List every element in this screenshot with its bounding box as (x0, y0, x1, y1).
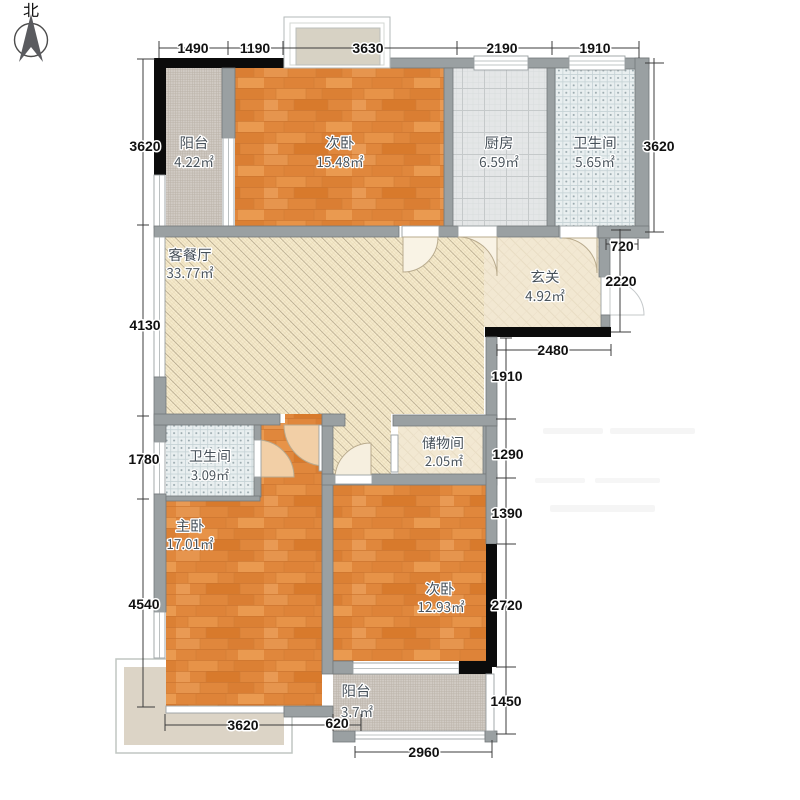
svg-text:3620: 3620 (227, 717, 258, 733)
svg-text:1490: 1490 (177, 40, 208, 56)
svg-text:2720: 2720 (491, 597, 522, 613)
svg-text:1290: 1290 (492, 446, 523, 462)
svg-text:3630: 3630 (352, 40, 383, 56)
svg-text:3620: 3620 (129, 138, 160, 154)
svg-text:620: 620 (325, 715, 349, 731)
svg-text:4130: 4130 (129, 317, 160, 333)
svg-text:1390: 1390 (491, 505, 522, 521)
svg-text:2190: 2190 (486, 40, 517, 56)
svg-text:1190: 1190 (240, 40, 271, 56)
svg-text:3620: 3620 (643, 138, 674, 154)
svg-text:2480: 2480 (537, 342, 568, 358)
svg-text:4540: 4540 (128, 596, 159, 612)
svg-text:2960: 2960 (408, 744, 439, 760)
svg-text:1910: 1910 (491, 368, 522, 384)
svg-text:1450: 1450 (490, 693, 521, 709)
svg-text:720: 720 (610, 238, 634, 254)
svg-text:2220: 2220 (605, 273, 636, 289)
svg-text:1780: 1780 (128, 451, 159, 467)
svg-text:1910: 1910 (579, 40, 610, 56)
